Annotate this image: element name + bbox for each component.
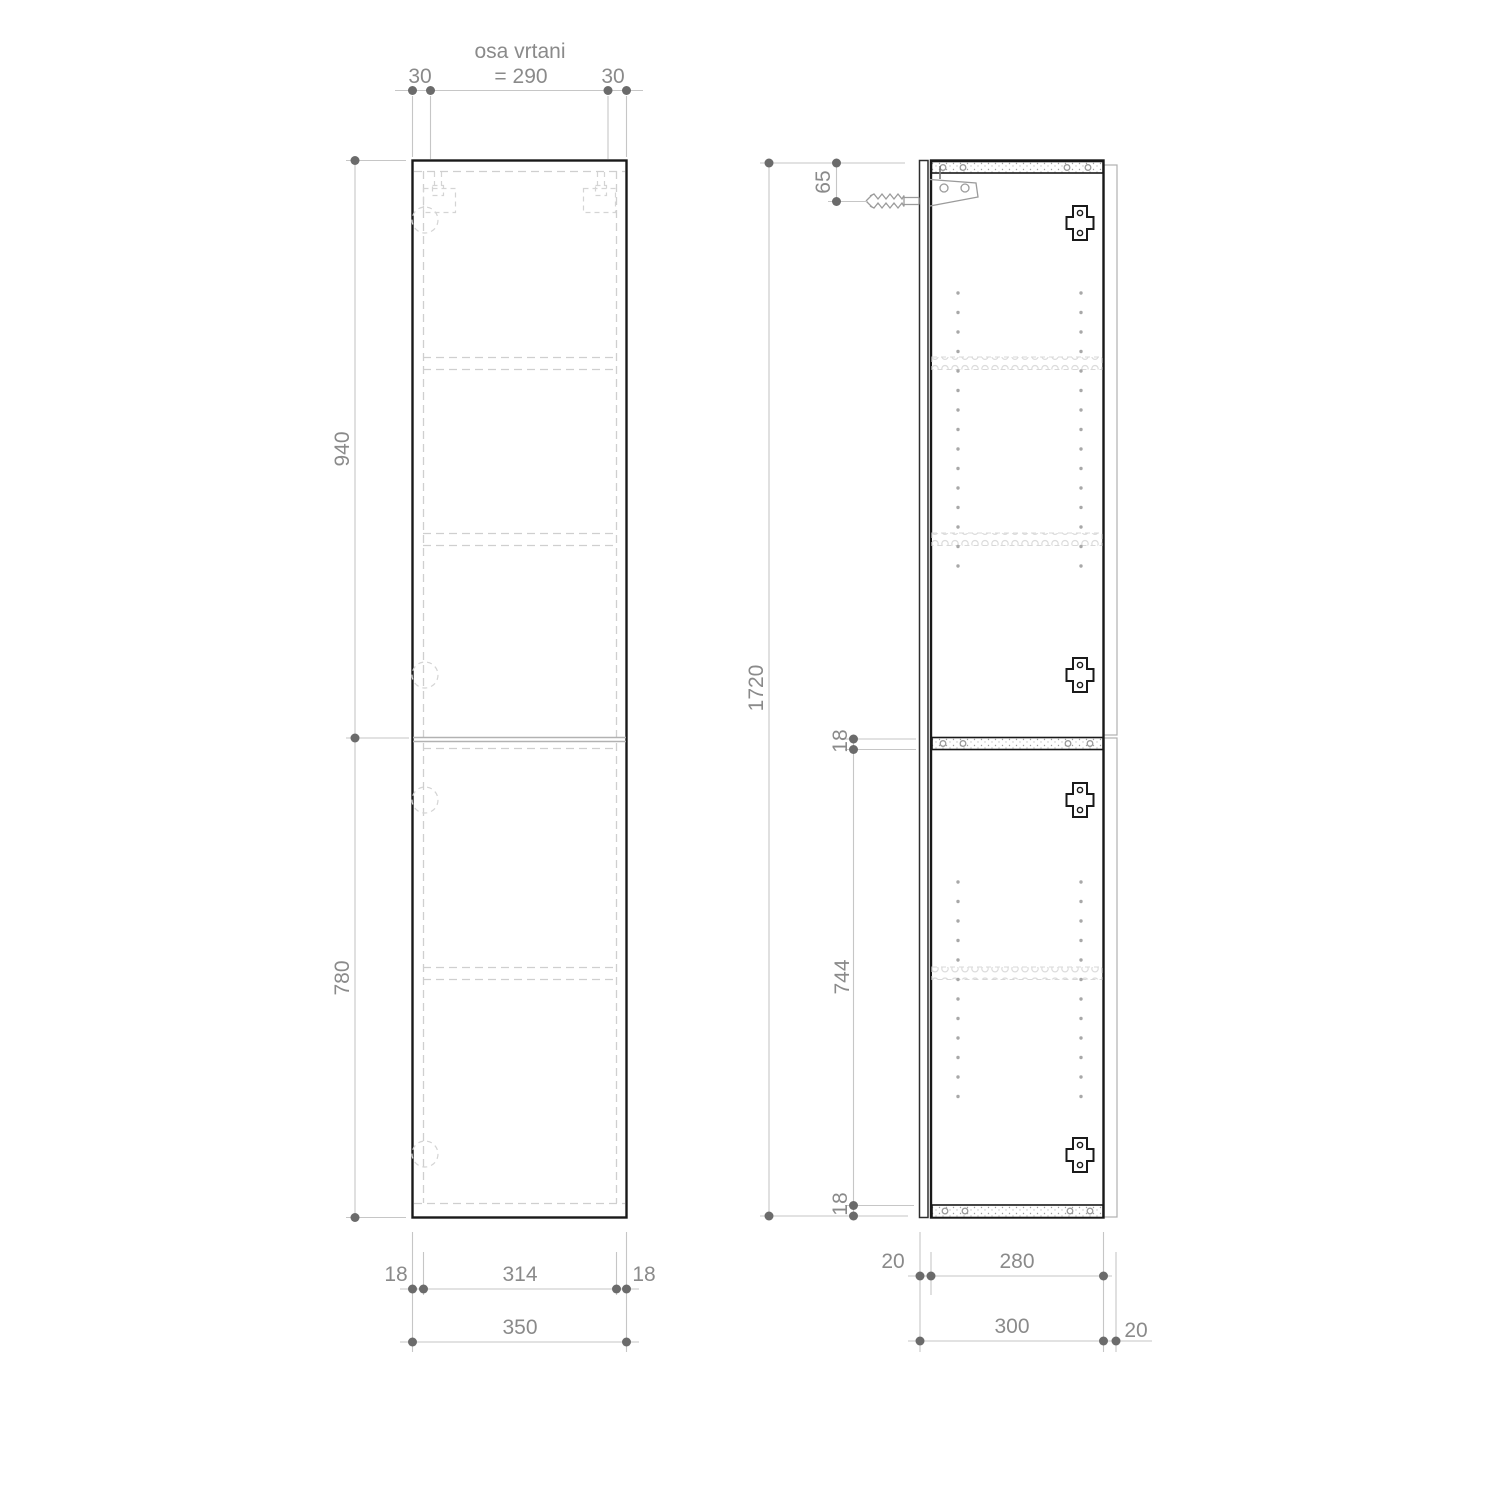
dim-label-inner-depth: 280: [999, 1250, 1034, 1273]
drill-note-line1: osa vrtani: [474, 40, 565, 63]
front-cabinet-outline: [413, 161, 627, 1218]
dim-label-total-height: 1720: [745, 665, 768, 712]
dim-label-door-thickness: 20: [881, 1250, 904, 1273]
front-view: [412, 161, 627, 1218]
drawing-svg: osa vrtani = 290 30 30 940 780: [0, 0, 1500, 1500]
dim-label-inner-width: 314: [502, 1263, 537, 1286]
dim-label-lower-inner-height: 744: [831, 959, 854, 994]
dim-label-drill-offset-left: 30: [408, 65, 431, 88]
dim-label-hanger-offset: 65: [812, 170, 835, 193]
dim-label-left-inset: 18: [384, 1263, 407, 1286]
page-background: [0, 0, 1500, 1500]
dim-label-bottom-panel-thickness: 18: [829, 1192, 852, 1215]
dim-label-total-width: 350: [502, 1316, 537, 1339]
dim-label-mid-panel-thickness: 18: [829, 729, 852, 752]
cabinet-technical-drawing: osa vrtani = 290 30 30 940 780: [0, 0, 1500, 1500]
drill-note-line2: = 290: [494, 65, 547, 88]
dim-label-wall-rail-depth: 20: [1124, 1319, 1147, 1342]
side-door-panel: [920, 161, 929, 1218]
dim-label-upper-door-height: 940: [331, 431, 354, 466]
dim-label-lower-door-height: 780: [331, 960, 354, 995]
dim-label-right-inset: 18: [632, 1263, 655, 1286]
dim-label-drill-offset-right: 30: [601, 65, 624, 88]
dim-label-overall-depth: 300: [994, 1315, 1029, 1338]
